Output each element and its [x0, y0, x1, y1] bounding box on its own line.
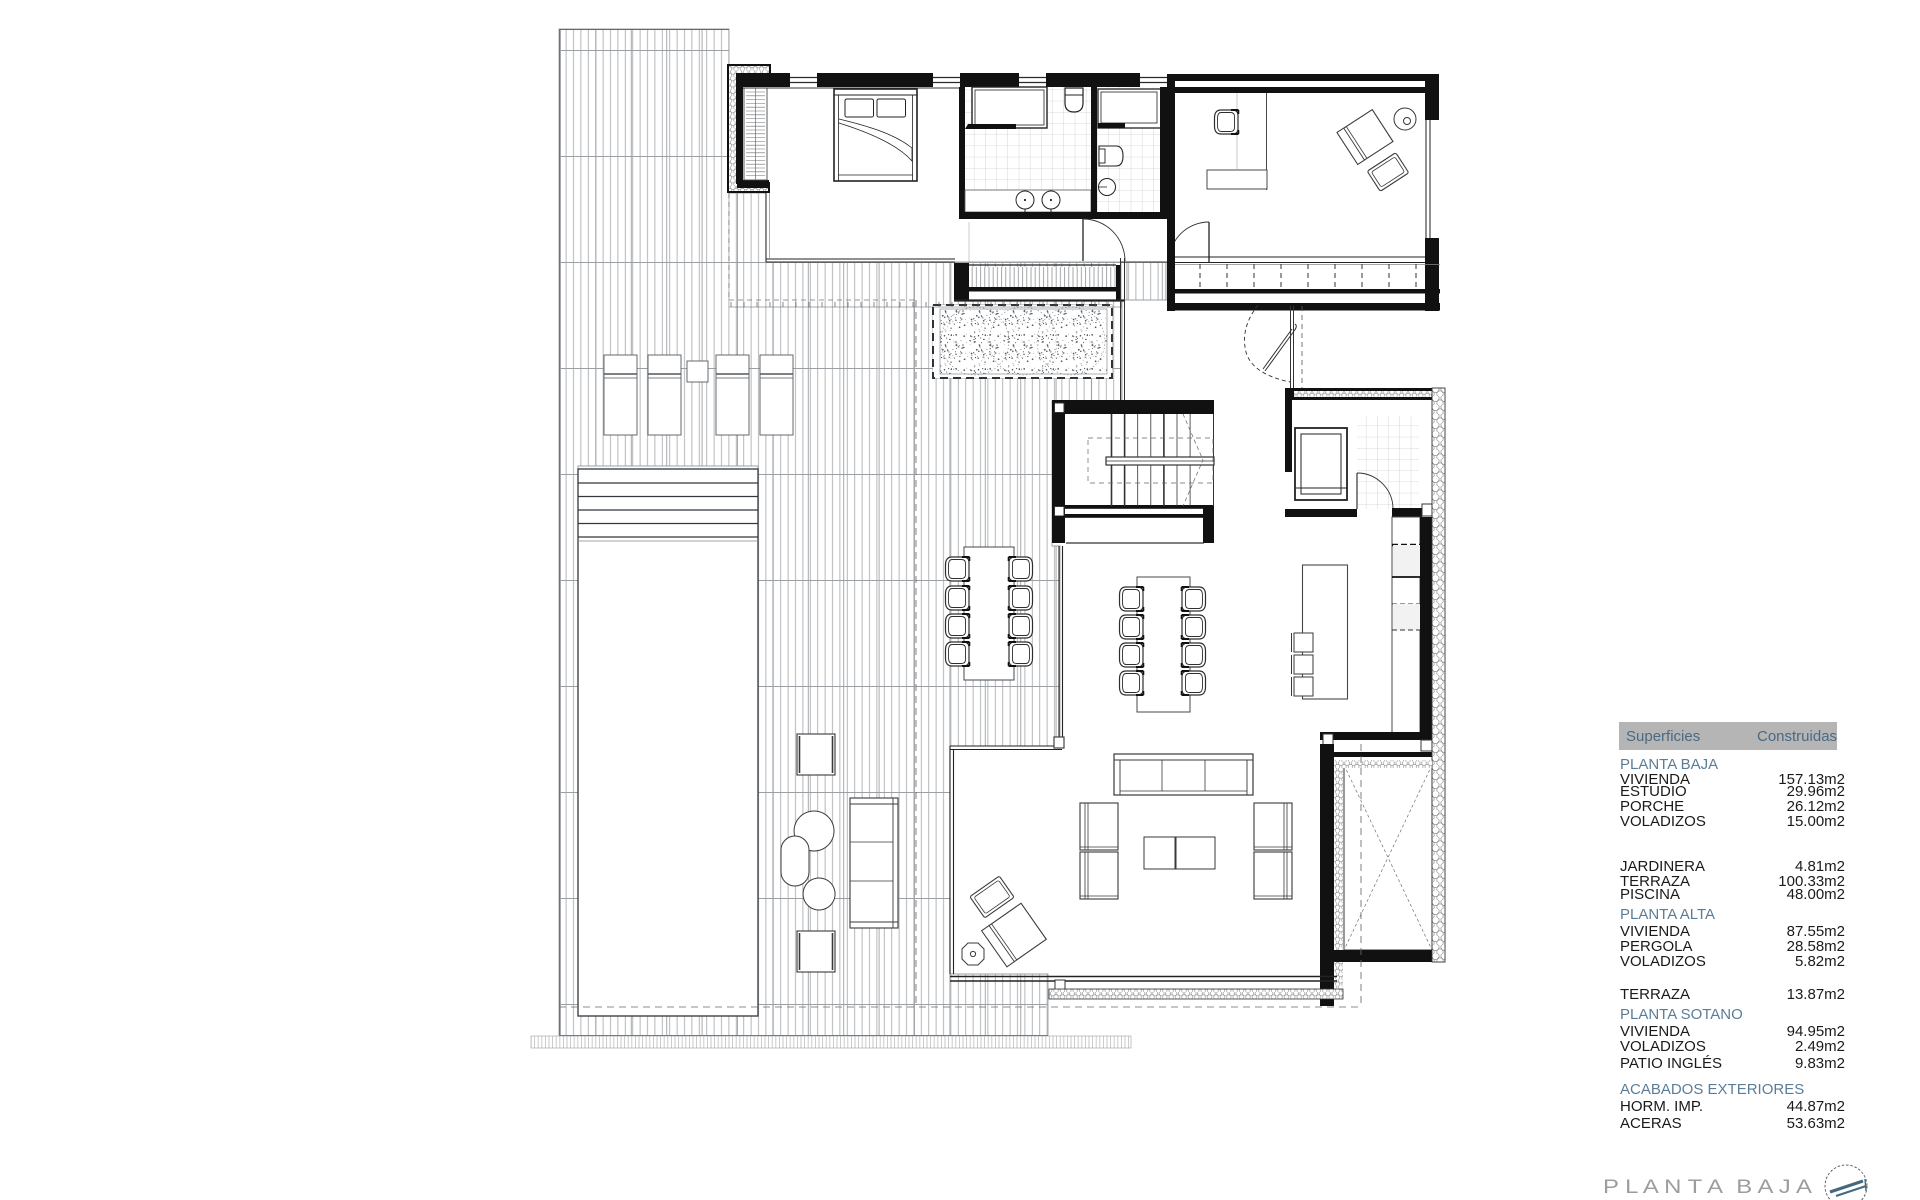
- svg-text:VOLADIZOS: VOLADIZOS: [1620, 1038, 1706, 1055]
- svg-text:VOLADIZOS: VOLADIZOS: [1620, 813, 1706, 830]
- svg-text:44.87m2: 44.87m2: [1787, 1098, 1845, 1115]
- svg-text:P L A N T A B A J A: P L A N T A B A J A: [1603, 1177, 1812, 1198]
- svg-text:5.82m2: 5.82m2: [1795, 953, 1845, 970]
- svg-text:PLANTA ALTA: PLANTA ALTA: [1620, 906, 1715, 923]
- svg-text:TERRAZA: TERRAZA: [1620, 986, 1690, 1003]
- svg-text:PISCINA: PISCINA: [1620, 886, 1680, 903]
- svg-text:2.49m2: 2.49m2: [1795, 1038, 1845, 1055]
- svg-text:48.00m2: 48.00m2: [1787, 886, 1845, 903]
- svg-text:13.87m2: 13.87m2: [1787, 986, 1845, 1003]
- svg-text:ACERAS: ACERAS: [1620, 1115, 1682, 1132]
- svg-text:VOLADIZOS: VOLADIZOS: [1620, 953, 1706, 970]
- svg-text:PLANTA SOTANO: PLANTA SOTANO: [1620, 1006, 1743, 1023]
- svg-text:PATIO INGLÉS: PATIO INGLÉS: [1620, 1055, 1722, 1072]
- svg-text:Superficies: Superficies: [1626, 728, 1700, 745]
- svg-text:Construidas: Construidas: [1757, 728, 1837, 745]
- svg-text:HORM. IMP.: HORM. IMP.: [1620, 1098, 1703, 1115]
- svg-text:9.83m2: 9.83m2: [1795, 1055, 1845, 1072]
- svg-text:53.63m2: 53.63m2: [1787, 1115, 1845, 1132]
- svg-text:ACABADOS EXTERIORES: ACABADOS EXTERIORES: [1620, 1081, 1804, 1098]
- svg-text:15.00m2: 15.00m2: [1787, 813, 1845, 830]
